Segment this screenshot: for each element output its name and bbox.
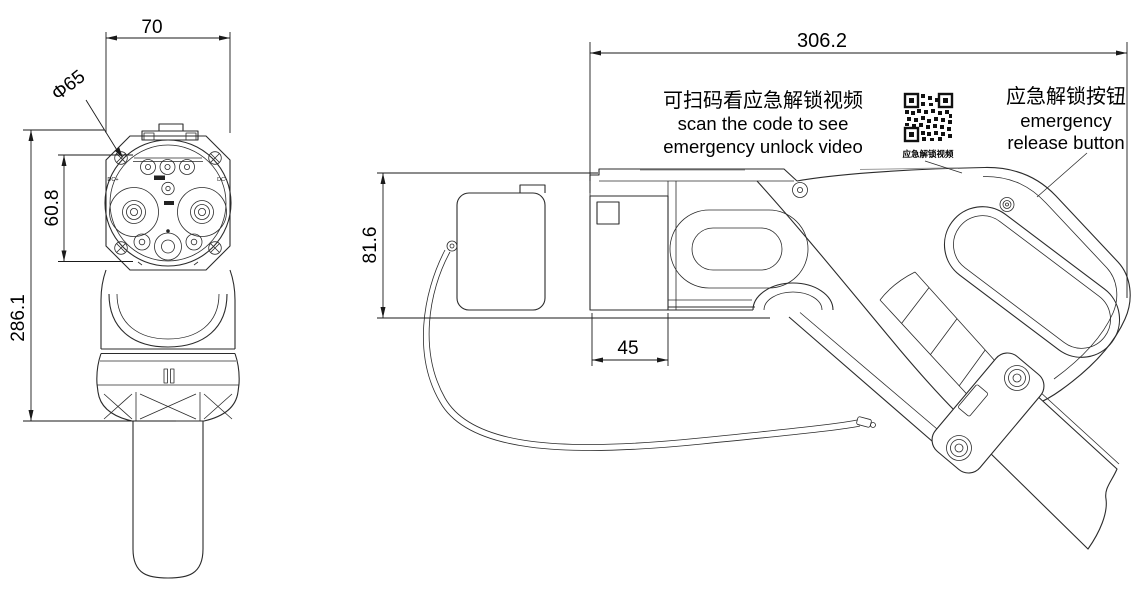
- qr-leader-line: [925, 161, 962, 173]
- drawing-canvas: DC+ DC- 70 Φ65: [0, 0, 1147, 605]
- dim-width-label: 70: [141, 17, 162, 38]
- qr-note-en-line1: scan the code to see: [678, 113, 849, 134]
- dimension-nozzle-45: 45: [592, 313, 668, 366]
- release-en-line1: emergency: [1020, 110, 1112, 131]
- dim-nozzle-label: 45: [617, 338, 638, 359]
- qr-caption: 应急解锁视频: [902, 149, 954, 159]
- dc-minus-label: DC-: [217, 177, 227, 183]
- release-zh: 应急解锁按钮: [1006, 85, 1126, 108]
- cable-boot: [98, 392, 238, 421]
- dim-diameter-label: Φ65: [48, 66, 90, 105]
- qr-note-en-line2: emergency unlock video: [663, 136, 863, 157]
- release-en-line2: release button: [1007, 132, 1124, 153]
- connector-handle-body: [97, 270, 239, 392]
- dimension-diameter-65: Φ65: [48, 66, 123, 158]
- dim-length-label: 286.1: [8, 294, 29, 342]
- gun-body: [668, 181, 957, 448]
- qr-note-zh: 可扫码看应急解锁视频: [663, 89, 863, 112]
- front-view: DC+ DC-: [97, 124, 239, 578]
- gun-nozzle: [590, 181, 676, 310]
- front-view-cable: [133, 421, 203, 578]
- tether-cable: [423, 250, 875, 451]
- connector-latch: [142, 124, 198, 140]
- technical-drawing-page: DC+ DC- 70 Φ65: [0, 0, 1147, 605]
- dimension-width-70: 70: [106, 17, 230, 133]
- dc-plus-label: DC+: [107, 177, 118, 183]
- release-button-block: 应急解锁按钮 emergency release button: [1006, 85, 1126, 197]
- dim-overall-label: 306.2: [797, 30, 847, 52]
- qr-code: [905, 94, 952, 141]
- dim-height-label: 81.6: [360, 227, 381, 264]
- dim-pinspan-label: 60.8: [42, 190, 63, 227]
- connector-pins: [110, 160, 227, 261]
- dimension-height-81-6: 81.6: [360, 173, 770, 318]
- latch-lever: [590, 168, 985, 182]
- qr-note-block: 可扫码看应急解锁视频 scan the code to see emergenc…: [663, 89, 863, 157]
- side-view: [423, 167, 1134, 549]
- dust-cap: [447, 185, 545, 310]
- release-leader-line: [1037, 153, 1087, 197]
